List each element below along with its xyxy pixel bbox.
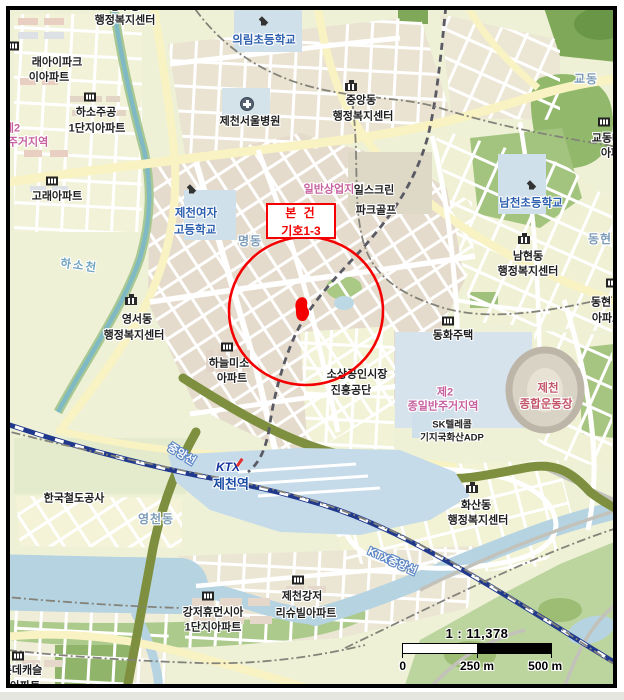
label-jecheon-stadium2: 종합운동장 [520, 399, 573, 411]
apartment-icon [292, 576, 304, 585]
school-icon [257, 17, 271, 28]
label-namhyeon-admin-center: 행정복지센터 [498, 267, 559, 278]
label-namcheon-elementary: 남천초등학교 [499, 198, 562, 210]
government-building-icon [466, 485, 478, 493]
apartment-icon [221, 343, 233, 352]
label-yeongseo-admin-center: 행정복지센터 [104, 331, 165, 342]
apartment-icon [7, 42, 19, 51]
label-gyodong-apt2: 아파트 [601, 149, 617, 160]
scale-bar-white-half [403, 644, 477, 653]
scale-bar-ticks [402, 654, 552, 658]
label-uirim-elementary: 의림초등학교 [232, 35, 295, 47]
label-zone-res2-1: 제2 [437, 388, 453, 399]
label-jungang-admin-center: 행정복지센터 [333, 112, 394, 123]
label-gangjeo-humansia1: 강저휴먼시아 [183, 608, 244, 619]
government-building-icon [345, 83, 357, 91]
label-jecheon-seoul-hospital: 제천서울병원 [220, 117, 281, 128]
label-haneulmiso-apt1: 하늘미소 [209, 359, 249, 370]
school-icon [525, 181, 539, 192]
label-yeongcheon-dong: 영천동 [138, 513, 174, 525]
label-gangjeo-humansia2: 1단지아파트 [185, 623, 242, 634]
subject-annotation-line1: 본 건 [285, 204, 316, 221]
apartment-icon [442, 317, 454, 326]
scale-bar-graphic [402, 643, 552, 654]
label-haso-jugong: 하소주공 [76, 108, 116, 119]
subject-annotation-line2: 기호1-3 [281, 222, 320, 239]
labels-layer: 용두동행정복지센터의림초등학교래아이파크이아파트하소주공1단지아파트제2주거지역… [6, 6, 617, 688]
map-frame: 용두동행정복지센터의림초등학교래아이파크이아파트하소주공1단지아파트제2주거지역… [6, 6, 617, 688]
apartment-icon [12, 652, 24, 661]
label-gyo-dong: 교동 [574, 73, 598, 85]
label-ktx-logo: KTX [216, 461, 240, 473]
apartment-icon [598, 118, 610, 127]
label-donghyeon-dong: 동현 [588, 233, 612, 245]
label-haso-jugong2: 1단지아파트 [69, 124, 126, 135]
label-jecheon-girls-hs1: 제천여자 [175, 208, 217, 220]
scale-ratio: 1 : 11,378 [402, 626, 552, 641]
label-hwasan-dong: 화산동 [461, 501, 491, 512]
label-haneulmiso-apt2: 아파트 [217, 374, 247, 385]
label-jecheon-girls-hs2: 고등학교 [174, 225, 216, 237]
apartment-icon [46, 177, 58, 186]
label-top-admin-center: 행정복지센터 [95, 16, 156, 27]
label-raeipark-apt2: 이아파트 [29, 73, 69, 84]
scale-tick-0: 0 [399, 659, 406, 673]
label-lotte-castle1: 롯데캐슬 [6, 666, 42, 677]
label-korail: 한국철도공사 [44, 494, 105, 505]
label-gyodong-apt1: 교동대원 [592, 134, 617, 145]
scale-tick-250: 250 m [460, 659, 494, 673]
scale-tick-500: 500 m [528, 659, 562, 673]
label-gangjeo-leesuvill1: 제천강저 [282, 592, 322, 603]
label-sosanggongin2: 진흥공단 [331, 386, 371, 397]
label-top-admin-dong: 용두동 [110, 6, 140, 13]
map-image: 용두동행정복지센터의림초등학교래아이파크이아파트하소주공1단지아파트제2주거지역… [6, 6, 617, 688]
label-gorae-apt: 고래아파트 [32, 192, 83, 203]
label-jecheon-station: 제천역 [213, 478, 249, 491]
label-hwasan-admin-center: 행정복지센터 [448, 516, 509, 527]
label-zone-res-left1: 제2 [6, 124, 20, 135]
label-sk-telecom1: SK텔레콤 [432, 420, 471, 430]
government-building-icon [518, 236, 530, 244]
scale-bar-labels: 0 250 m 500 m [402, 659, 552, 672]
label-screen-parkgolf2: 파크골프 [356, 206, 396, 217]
label-namhyeon-dong: 남현동 [513, 252, 543, 263]
label-sosanggongin1: 소상공인시장 [327, 370, 388, 381]
label-zone-res-left2: 주거지역 [8, 138, 48, 149]
label-jungang-dong: 중앙동 [346, 96, 376, 107]
label-jecheon-stadium1: 제천 [537, 383, 558, 395]
label-myeong-dong: 명동 [238, 235, 262, 247]
label-ktx-jungang-line: KTX중앙선 [366, 546, 418, 577]
apartment-icon [202, 592, 214, 601]
label-jungang-line: 중앙선 [165, 442, 197, 467]
label-lotte-castle2: 이아파트 [6, 682, 40, 689]
apartment-icon [84, 93, 96, 102]
label-donghyeon-apt1: 동현 [591, 298, 611, 309]
label-hasocheon-stream: 하소천 [60, 259, 99, 276]
subject-annotation-box: 본 건 기호1-3 [266, 203, 336, 239]
label-yeongseo-dong: 영서동 [122, 315, 152, 326]
scale-bar-black-half [477, 644, 551, 653]
apartment-icon [606, 279, 617, 288]
label-screen-parkgolf1: 일스크린 [354, 186, 394, 197]
page-margin [0, 692, 624, 700]
label-sk-telecom2: 기지국화산ADP [420, 433, 484, 443]
label-gangjeo-leesuvill2: 리슈빌아파트 [276, 609, 337, 620]
school-icon [185, 185, 199, 196]
label-raeipark-apt: 래아이파크 [32, 58, 83, 69]
label-donghyeon-apt2: 아파트 [592, 314, 617, 325]
hospital-icon [240, 97, 254, 111]
scale-bar: 1 : 11,378 0 250 m 500 m [402, 626, 552, 672]
label-zone-res2-2: 종일반주거지역 [408, 402, 479, 413]
label-donghwa-jutaek: 동화주택 [433, 331, 473, 342]
government-building-icon [125, 297, 137, 305]
